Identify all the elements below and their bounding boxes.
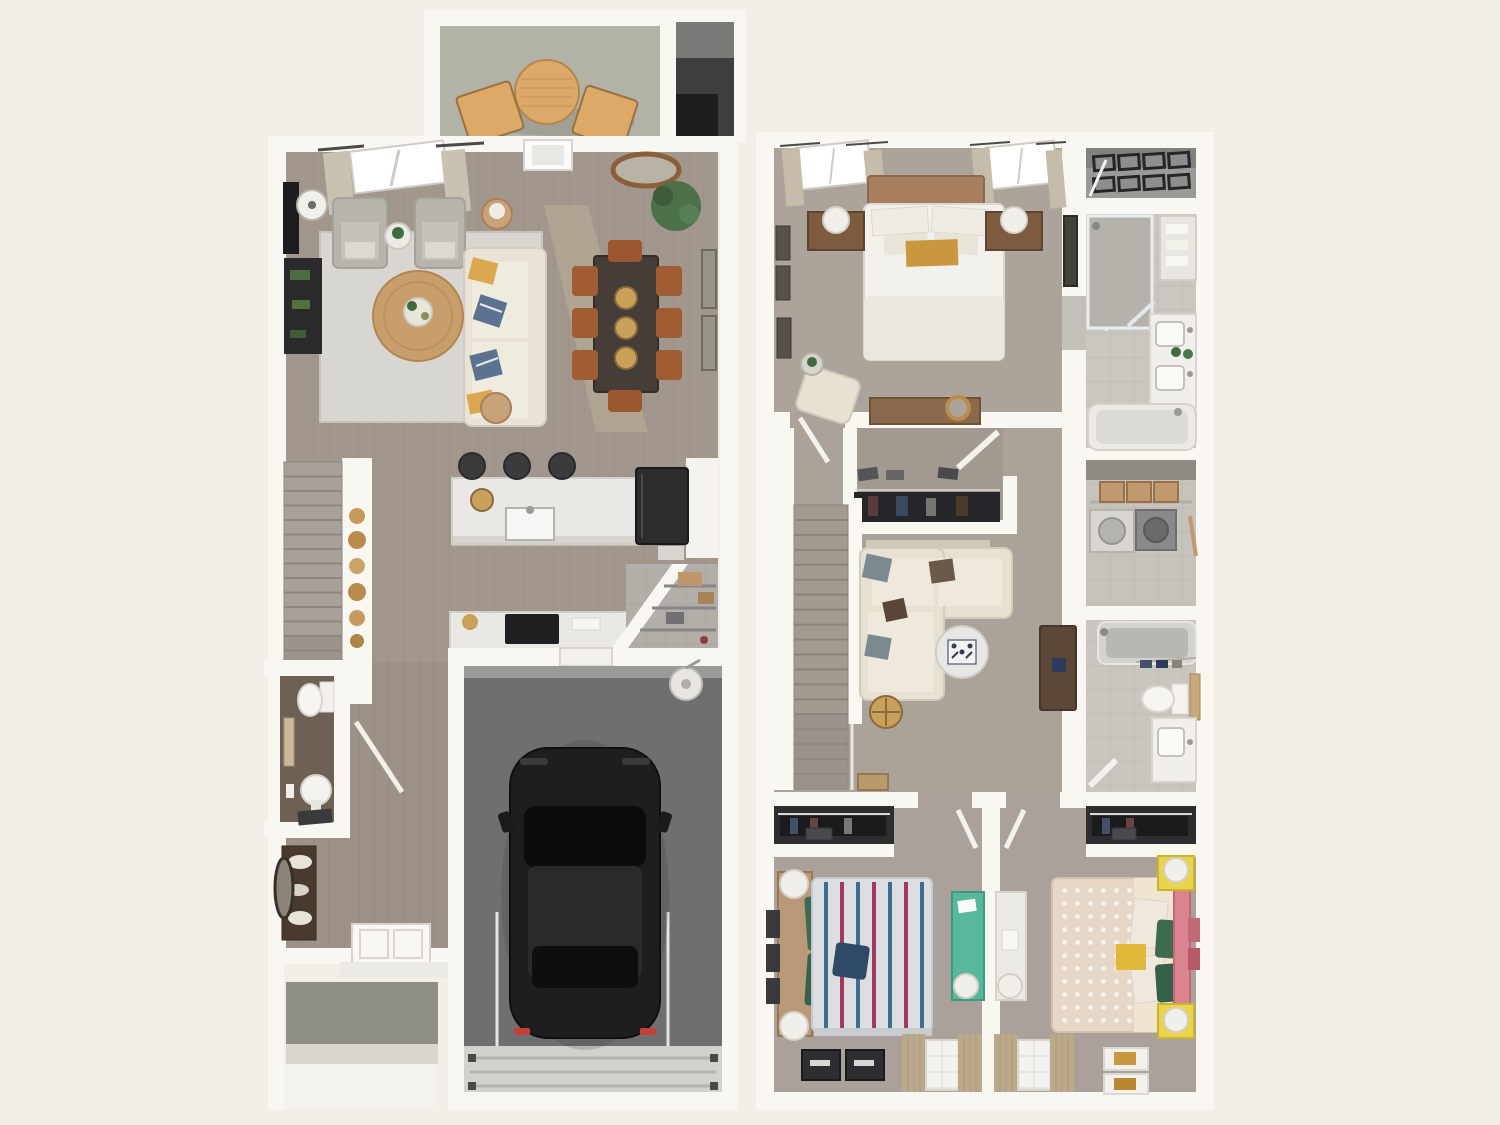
duvet-dots xyxy=(1075,953,1080,958)
game-piece xyxy=(960,650,965,655)
bathtub-inner xyxy=(1096,410,1188,444)
decor-bowl xyxy=(471,489,493,511)
entry-shaft-door xyxy=(676,94,718,140)
shelf-item xyxy=(937,467,958,480)
armchair-pillow xyxy=(425,242,455,258)
dining-chair xyxy=(656,266,682,296)
bed-frame-pink xyxy=(1174,888,1190,1004)
towel-ladder xyxy=(1190,674,1200,720)
duvet-dots xyxy=(1127,901,1132,906)
duvet-dots xyxy=(1062,979,1067,984)
towel-stack xyxy=(1166,224,1188,234)
wall-art xyxy=(776,266,790,300)
duvet-dots xyxy=(1101,992,1106,997)
patio-wall xyxy=(424,10,676,26)
duvet-dots xyxy=(1114,914,1119,919)
doormat xyxy=(858,774,888,790)
duvet-dots xyxy=(1127,1005,1132,1010)
duvet-dots xyxy=(1088,992,1093,997)
table-lamp xyxy=(1164,858,1188,882)
duvet-dots xyxy=(1088,966,1093,971)
table-lamp xyxy=(823,207,849,233)
console-decor xyxy=(292,300,310,309)
table-lamp xyxy=(780,1012,808,1040)
duvet-dots xyxy=(1114,1005,1119,1010)
garage-door-to-house xyxy=(560,648,612,666)
car-windshield xyxy=(524,806,646,868)
duvet-dots xyxy=(1062,966,1067,971)
stair-wall-decor xyxy=(349,558,365,574)
dining-chair xyxy=(572,266,598,296)
duvet-dots xyxy=(1088,888,1093,893)
patio-table xyxy=(515,60,579,124)
console-decor xyxy=(290,330,306,338)
faucet xyxy=(1187,739,1193,745)
shelf-item xyxy=(886,470,904,480)
pillow-navy xyxy=(832,942,870,980)
bathtub-inner xyxy=(1106,628,1188,658)
duvet-dots xyxy=(1101,1018,1106,1023)
duvet-dots xyxy=(1101,901,1106,906)
duvet-dots xyxy=(1114,1018,1119,1023)
wall xyxy=(720,136,738,1110)
bed-throw xyxy=(906,239,959,267)
porch-step xyxy=(286,1044,438,1064)
wall xyxy=(1086,606,1196,620)
stair-shadow xyxy=(794,716,848,789)
duvet-dots xyxy=(1101,914,1106,919)
sofa-pillow xyxy=(929,558,956,583)
wall xyxy=(1060,792,1196,808)
duvet-dots xyxy=(1127,914,1132,919)
picture-frame xyxy=(1169,174,1190,188)
duvet-dots xyxy=(1101,966,1106,971)
duvet-dots xyxy=(1075,1005,1080,1010)
console-decor xyxy=(290,270,310,280)
table-lamp xyxy=(1001,207,1027,233)
duvet-dots xyxy=(1114,927,1119,932)
desk-item xyxy=(1002,930,1018,950)
duvet-dots xyxy=(1062,927,1067,932)
pantry-box xyxy=(666,612,684,624)
wall-art xyxy=(1188,948,1200,970)
sofa-pillow xyxy=(864,634,891,660)
stair-wall-decor xyxy=(348,531,366,549)
door-bracket xyxy=(468,1054,476,1062)
bar-stool xyxy=(504,453,530,479)
clothes-item xyxy=(868,496,878,516)
toilet-bowl xyxy=(1142,686,1174,712)
floor-lamp-center xyxy=(308,201,316,209)
door-step xyxy=(340,962,448,978)
duvet-dots xyxy=(1088,901,1093,906)
duvet-dots xyxy=(1088,953,1093,958)
bar-stool xyxy=(459,453,485,479)
duvet-dots xyxy=(1088,927,1093,932)
vanity-plant xyxy=(1183,349,1193,359)
picture-frame xyxy=(1119,154,1140,169)
towel xyxy=(1140,660,1152,668)
duvet-dots xyxy=(1062,953,1067,958)
toilet-bowl xyxy=(298,684,322,716)
duvet-dots xyxy=(1075,966,1080,971)
mat-label xyxy=(810,1060,830,1066)
duvet-dots xyxy=(1127,992,1132,997)
tray-plant xyxy=(407,301,417,311)
car-headlight xyxy=(520,758,548,765)
duvet-fold xyxy=(864,296,1004,360)
clothes-item xyxy=(896,496,908,516)
pillow xyxy=(931,206,991,236)
duvet-dots xyxy=(1075,888,1080,893)
armchair-pillow xyxy=(345,242,375,258)
wall-art xyxy=(776,226,790,260)
dresser-mirror xyxy=(947,397,969,419)
duvet-dots xyxy=(1088,1005,1093,1010)
dining-chair xyxy=(656,350,682,380)
window xyxy=(926,1040,960,1090)
vanity-sink xyxy=(1158,728,1184,756)
duvet-dots xyxy=(1088,979,1093,984)
stair-wall-decor xyxy=(350,634,364,648)
cooktop xyxy=(505,614,559,644)
duvet-dots xyxy=(1075,901,1080,906)
wall xyxy=(1086,198,1196,214)
porch-walkway xyxy=(284,1064,438,1110)
duvet-dots xyxy=(1114,979,1119,984)
basket xyxy=(1127,482,1151,502)
shower-head xyxy=(1100,628,1108,636)
wall xyxy=(268,136,286,966)
entry-mirror xyxy=(275,858,293,918)
pantry-jar xyxy=(700,636,708,644)
patio-door-glass xyxy=(532,145,564,165)
duvet-dots xyxy=(1088,914,1093,919)
pantry-box xyxy=(698,592,714,604)
picture-frame xyxy=(1144,175,1165,189)
wall xyxy=(774,792,918,808)
duvet-dots xyxy=(1075,940,1080,945)
desk-paper xyxy=(957,899,976,913)
table-lamp xyxy=(1164,1008,1188,1032)
duvet-dots xyxy=(1101,940,1106,945)
wall-mirror xyxy=(613,154,679,186)
dining-chair xyxy=(572,350,598,380)
powder-towel xyxy=(286,784,294,798)
tv xyxy=(283,182,299,254)
duvet-dots xyxy=(1114,901,1119,906)
door-bracket xyxy=(710,1054,718,1062)
wall xyxy=(334,660,350,838)
mat-label xyxy=(854,1060,874,1066)
duvet-dots xyxy=(1127,888,1132,893)
vanity-sink xyxy=(1156,366,1184,390)
duvet-dots xyxy=(1101,888,1106,893)
duvet-dots xyxy=(1075,979,1080,984)
car-rear-window xyxy=(532,946,638,988)
pillow xyxy=(871,206,929,236)
duvet-dots xyxy=(1101,953,1106,958)
water-heater-cap xyxy=(681,679,691,689)
car-headlight xyxy=(622,758,650,765)
door-bracket xyxy=(468,1082,476,1090)
desk-lamp xyxy=(954,974,978,998)
duvet-dots xyxy=(1114,888,1119,893)
wall-art xyxy=(766,910,780,938)
dining-chair xyxy=(608,240,642,262)
laundry-back-wall xyxy=(1086,460,1196,480)
duvet-dots xyxy=(1075,927,1080,932)
small-appliance xyxy=(658,546,684,560)
mat-art xyxy=(1114,1078,1136,1090)
duvet-dots xyxy=(1101,927,1106,932)
picture-frame xyxy=(1144,153,1165,168)
pantry-box xyxy=(678,572,702,586)
car-taillight xyxy=(640,1028,656,1035)
washer-door xyxy=(1099,518,1125,544)
door-bracket xyxy=(710,1082,718,1090)
clothes-item xyxy=(926,498,936,516)
wall-art xyxy=(766,978,780,1004)
porch-slab xyxy=(286,982,438,1044)
wall-art xyxy=(777,318,791,358)
basket xyxy=(1100,482,1124,502)
powder-art xyxy=(284,718,294,766)
wall xyxy=(1086,843,1196,857)
centerpiece xyxy=(615,347,637,369)
mat-art xyxy=(1114,1052,1136,1065)
wall-art xyxy=(766,944,780,972)
faucet xyxy=(1187,371,1193,377)
duvet-dots xyxy=(1075,1018,1080,1023)
towel xyxy=(1156,660,1168,668)
faucet xyxy=(1187,327,1193,333)
wall-art xyxy=(702,316,716,370)
wall xyxy=(972,792,1006,808)
stair-wall-decor xyxy=(349,508,365,524)
stair-side-wall xyxy=(774,428,794,790)
powder-mat xyxy=(297,809,332,826)
vanity-plant xyxy=(1171,347,1181,357)
stair-wall-decor xyxy=(348,583,366,601)
tub-faucet xyxy=(1174,408,1182,416)
duvet-dots xyxy=(1075,992,1080,997)
duvet-dots xyxy=(1075,914,1080,919)
counter-decor xyxy=(462,614,478,630)
car-taillight xyxy=(514,1028,530,1035)
dining-chair xyxy=(656,308,682,338)
wicker-table xyxy=(481,393,511,423)
picture-frame xyxy=(1169,152,1190,167)
duvet-dots xyxy=(1101,1005,1106,1010)
vanity-sink xyxy=(1156,322,1184,346)
centerpiece xyxy=(615,317,637,339)
plant-side-table-plant xyxy=(392,227,404,239)
dryer-door xyxy=(1144,518,1168,542)
dining-chair xyxy=(572,308,598,338)
game-piece xyxy=(952,644,957,649)
table-lamp xyxy=(780,870,808,898)
console-plate xyxy=(288,911,312,925)
bath-doorway xyxy=(1062,296,1086,350)
wall xyxy=(774,843,894,857)
window xyxy=(796,140,872,189)
clothes-item xyxy=(956,496,968,516)
wall xyxy=(448,1092,738,1110)
duvet-dots xyxy=(1062,940,1067,945)
floor-plan-render xyxy=(0,0,1500,1125)
wall xyxy=(448,648,464,1110)
wall xyxy=(843,520,1017,534)
floor-plan-svg xyxy=(0,0,1500,1125)
stair-wall-decor xyxy=(349,610,365,626)
wicker-table-lamp xyxy=(489,203,505,219)
bed-throw xyxy=(1116,944,1146,970)
console-item xyxy=(1052,658,1066,672)
desk-lamp xyxy=(998,974,1022,998)
counter-dish xyxy=(572,618,600,630)
tray-decor xyxy=(421,312,429,320)
towel xyxy=(1172,660,1182,668)
clothes-item xyxy=(844,818,852,834)
duvet-dots xyxy=(1114,992,1119,997)
clothes-item xyxy=(790,818,798,834)
wall-art xyxy=(1064,216,1077,286)
wall xyxy=(774,412,790,428)
wall-art xyxy=(702,250,716,308)
patio-wall xyxy=(424,10,440,138)
fridge xyxy=(636,468,688,544)
side-table-plant xyxy=(807,357,817,367)
duvet-dots xyxy=(1101,979,1106,984)
sink-faucet xyxy=(526,506,534,514)
window xyxy=(1018,1040,1052,1090)
duvet-dots xyxy=(1088,940,1093,945)
duvet-dots xyxy=(1062,1018,1067,1023)
game-piece xyxy=(968,644,973,649)
duvet-dots xyxy=(1062,992,1067,997)
fridge-alcove xyxy=(686,458,718,558)
closet-hamper xyxy=(806,828,832,840)
duvet-dots xyxy=(1127,1018,1132,1023)
second-floor-plan xyxy=(756,132,1214,1110)
duvet-dots xyxy=(1062,901,1067,906)
first-floor-plan xyxy=(264,10,746,1110)
duvet-dots xyxy=(1062,914,1067,919)
picture-frame xyxy=(1119,176,1140,190)
coffee-tray xyxy=(404,298,432,326)
plant xyxy=(653,186,673,206)
shower-head xyxy=(1092,222,1100,230)
towel-stack xyxy=(1166,256,1188,266)
duvet-dots xyxy=(1062,888,1067,893)
duvet-dots xyxy=(1127,979,1132,984)
centerpiece xyxy=(615,287,637,309)
bar-stool xyxy=(549,453,575,479)
plant xyxy=(679,204,699,224)
wall xyxy=(268,948,284,1110)
basket xyxy=(1154,482,1178,502)
wall-art xyxy=(1188,918,1200,942)
closet-hamper xyxy=(1112,828,1136,840)
duvet-dots xyxy=(1062,1005,1067,1010)
duvet-dots xyxy=(1088,1018,1093,1023)
clothes-item xyxy=(1102,818,1110,834)
towel-stack xyxy=(1166,240,1188,250)
dining-chair xyxy=(608,390,642,412)
